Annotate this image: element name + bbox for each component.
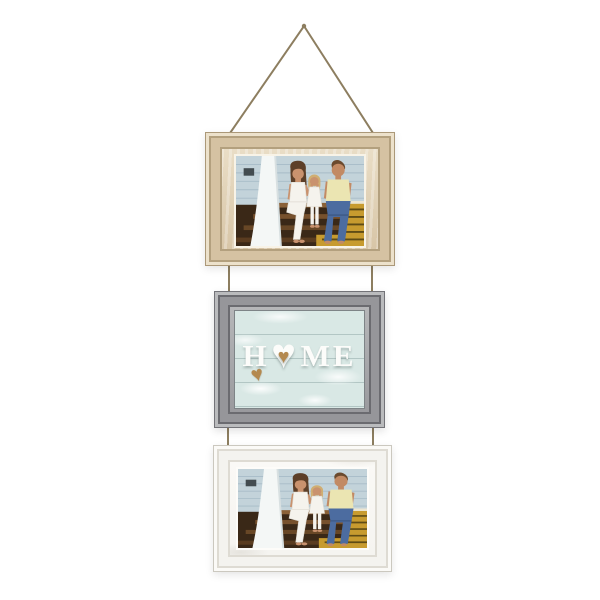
frame-bottom-white-wood — [213, 445, 392, 572]
home-sign-panel: H ♥ ♥ ME ♥ — [234, 310, 365, 409]
product-photo: H ♥ ♥ ME ♥ — [0, 0, 600, 600]
rope-knot — [302, 24, 306, 28]
frame-top-photo-mat — [234, 154, 366, 248]
frame-top-natural-wood — [205, 132, 395, 266]
family-photo-bottom — [238, 469, 367, 548]
frame-middle-gray-wood: H ♥ ♥ ME ♥ — [214, 291, 385, 428]
heart-o-icon: ♥ ♥ — [270, 338, 301, 374]
sign-letters-me: ME — [301, 340, 357, 371]
frame-bottom-photo-mat — [236, 467, 369, 550]
rope-hanger-triangle — [228, 26, 373, 136]
brown-heart-icon: ♥ — [278, 347, 293, 367]
family-photo-top — [236, 156, 364, 246]
